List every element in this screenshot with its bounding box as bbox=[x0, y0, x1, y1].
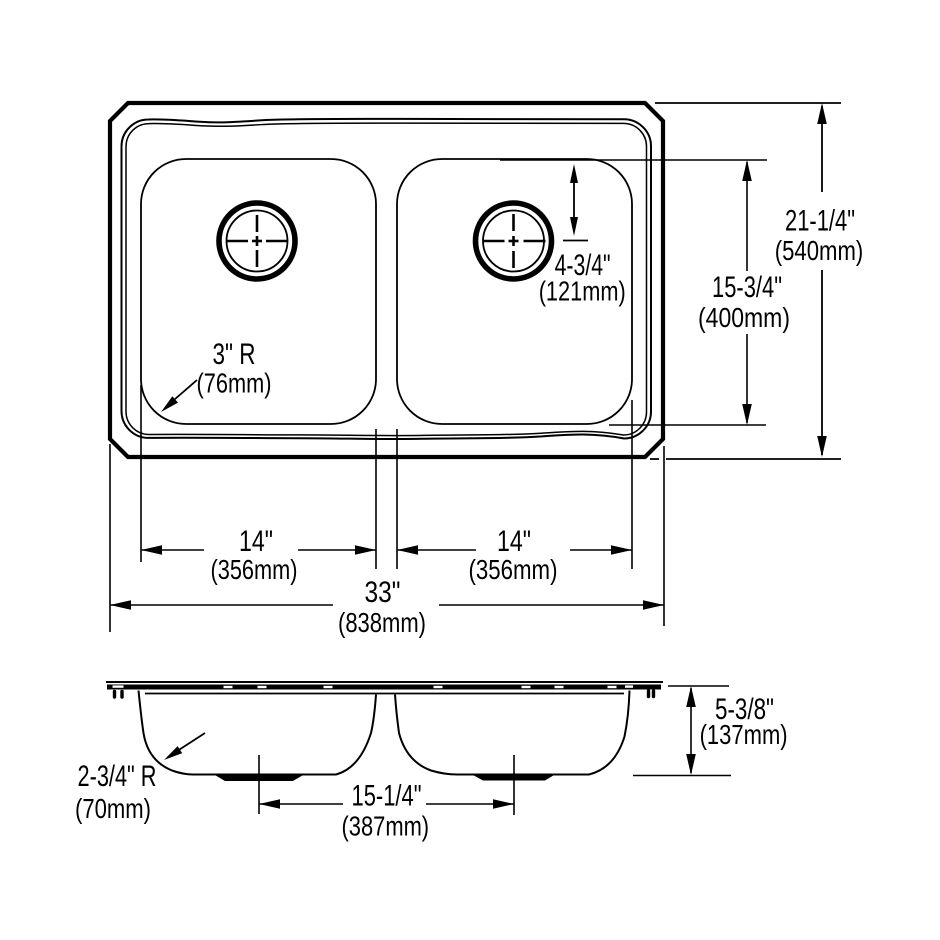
svg-text:2-3/4" R: 2-3/4" R bbox=[78, 760, 157, 793]
svg-text:15-1/4": 15-1/4" bbox=[352, 780, 422, 813]
svg-text:15-3/4": 15-3/4" bbox=[712, 271, 782, 304]
svg-text:3" R: 3" R bbox=[213, 338, 256, 371]
svg-text:(356mm): (356mm) bbox=[211, 554, 298, 585]
svg-text:(356mm): (356mm) bbox=[469, 554, 558, 585]
svg-text:(387mm): (387mm) bbox=[342, 811, 430, 842]
svg-text:33": 33" bbox=[365, 576, 401, 609]
svg-text:(838mm): (838mm) bbox=[338, 607, 426, 638]
svg-text:(137mm): (137mm) bbox=[700, 719, 788, 750]
svg-text:(121mm): (121mm) bbox=[539, 276, 626, 307]
svg-text:(76mm): (76mm) bbox=[197, 368, 272, 399]
svg-text:21-1/4": 21-1/4" bbox=[785, 205, 855, 238]
svg-text:(400mm): (400mm) bbox=[698, 302, 790, 333]
svg-text:(70mm): (70mm) bbox=[75, 793, 151, 824]
svg-text:(540mm): (540mm) bbox=[775, 235, 864, 266]
